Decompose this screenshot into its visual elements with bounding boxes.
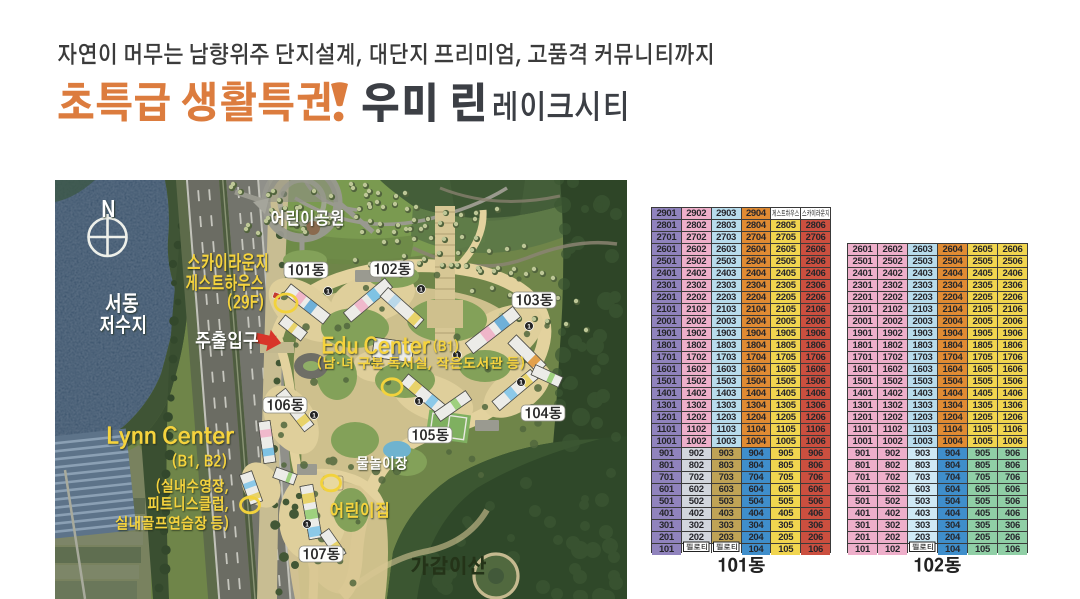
svg-text:1: 1: [455, 353, 459, 360]
svg-text:1: 1: [312, 413, 316, 420]
svg-text:1: 1: [305, 522, 309, 529]
svg-text:1: 1: [519, 380, 523, 387]
svg-text:1: 1: [417, 399, 421, 406]
svg-text:1: 1: [527, 324, 531, 331]
svg-text:1: 1: [326, 289, 330, 296]
svg-text:1: 1: [419, 287, 423, 294]
